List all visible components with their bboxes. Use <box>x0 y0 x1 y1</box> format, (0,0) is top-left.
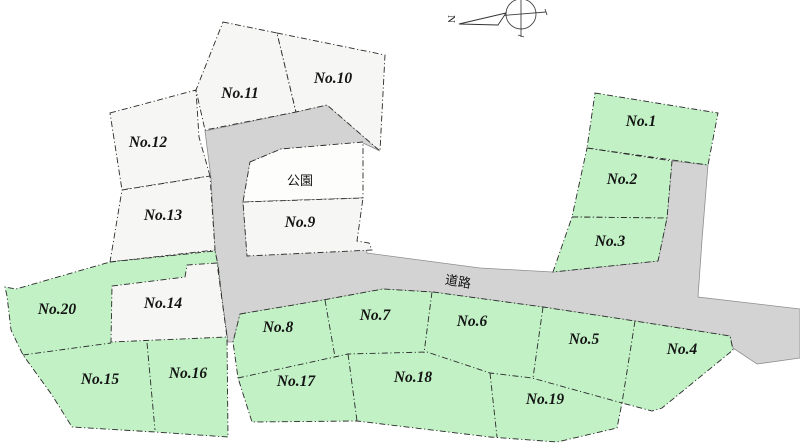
label-no5: No.5 <box>568 331 600 348</box>
label-no12: No.12 <box>128 134 168 151</box>
label-no1: No.1 <box>625 113 657 130</box>
label-no17: No.17 <box>276 373 317 390</box>
label-no7: No.7 <box>359 307 392 324</box>
label-no15: No.15 <box>80 371 120 388</box>
label-no11: No.11 <box>220 85 258 102</box>
label-no6: No.6 <box>456 313 488 330</box>
north-compass: N <box>445 0 547 37</box>
label-no8: No.8 <box>262 319 294 336</box>
compass-north-letter: N <box>445 15 457 23</box>
north-arrow-icon <box>459 13 506 25</box>
label-park: 公園 <box>287 173 313 188</box>
site-plan-map: No.1 No.2 No.3 No.4 No.5 No.6 No.7 No.8 … <box>0 0 800 448</box>
label-no10: No.10 <box>313 70 353 87</box>
label-no9: No.9 <box>284 214 316 231</box>
label-no2: No.2 <box>606 171 638 188</box>
label-no14: No.14 <box>143 295 183 312</box>
label-no18: No.18 <box>393 369 433 386</box>
label-no19: No.19 <box>525 391 565 408</box>
label-no20: No.20 <box>37 301 77 318</box>
label-no16: No.16 <box>168 365 208 382</box>
label-no13: No.13 <box>143 207 183 224</box>
site-plan-page: No.1 No.2 No.3 No.4 No.5 No.6 No.7 No.8 … <box>0 0 800 448</box>
label-no3: No.3 <box>594 233 626 250</box>
label-no4: No.4 <box>666 341 698 358</box>
